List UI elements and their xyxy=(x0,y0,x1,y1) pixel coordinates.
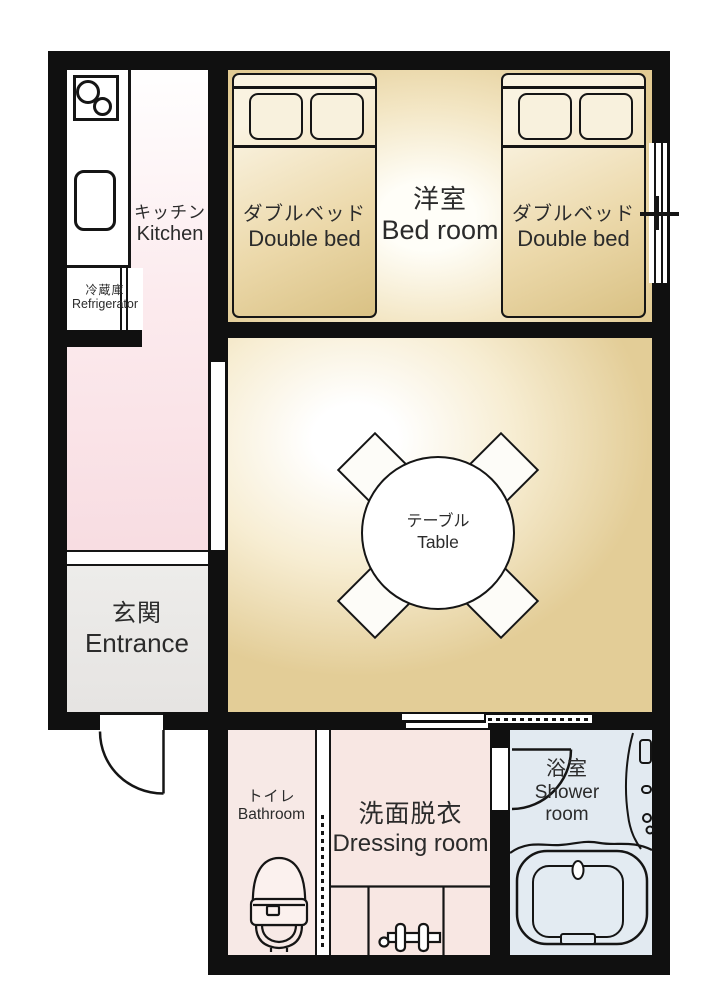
bathtub-icon xyxy=(510,842,652,944)
fixtures-overlay xyxy=(0,0,707,1000)
shower-door-swing-icon xyxy=(512,750,571,810)
washbasin-icon xyxy=(331,887,490,956)
toilet-icon xyxy=(251,858,307,952)
shower-counter-icon xyxy=(626,733,654,849)
entrance-door-swing-icon xyxy=(100,730,164,794)
floor-plan: ダブルベッド Double bed ダブルベッド Double bed テーブル… xyxy=(0,0,707,1000)
